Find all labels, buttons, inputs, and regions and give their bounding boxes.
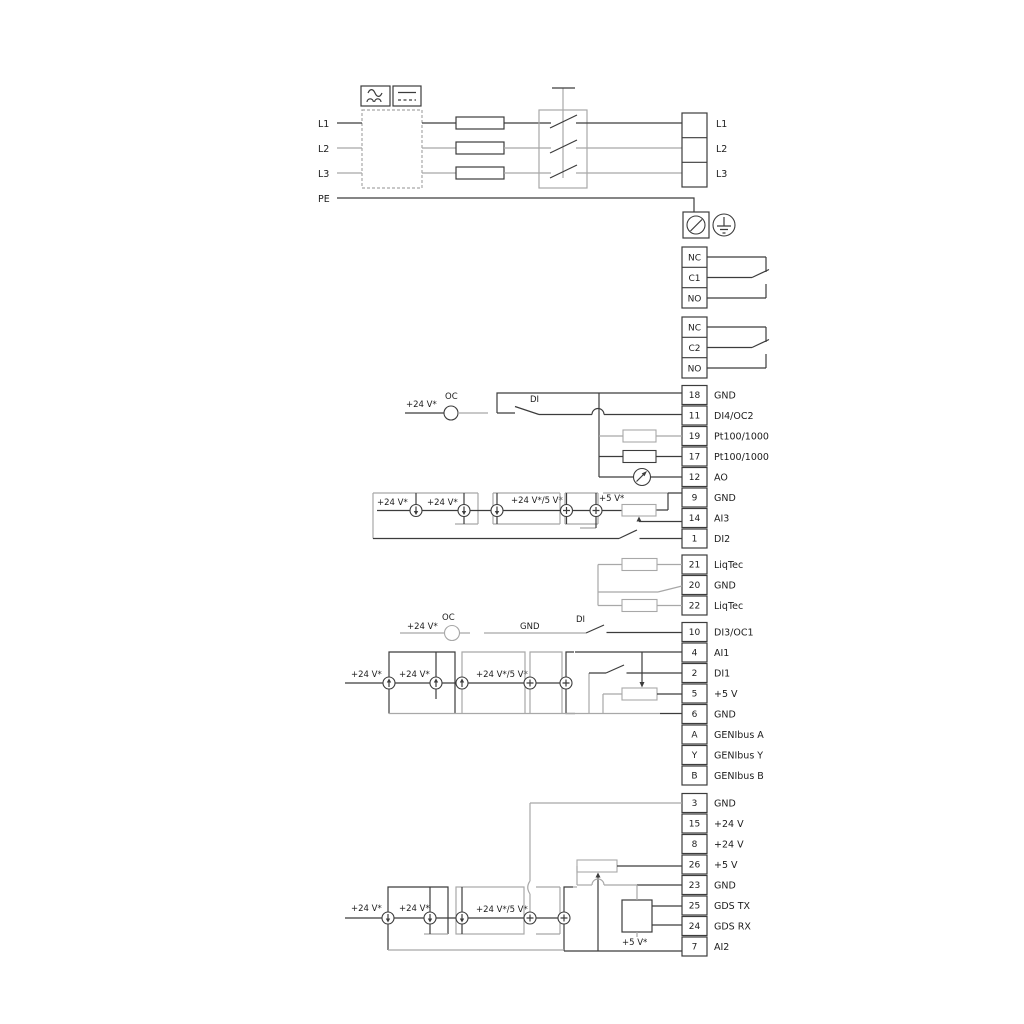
wiring-diagram: L1 L2 L3 PE (0, 0, 1024, 1024)
annotation-plus24v: +24 V* (407, 622, 438, 632)
voltage-source-icon (524, 677, 536, 689)
terminal-12: 12 (689, 473, 700, 483)
terminal-5-label: +5 V (714, 689, 738, 700)
current-source-icon (458, 505, 470, 517)
terminal-3-label: GND (714, 799, 736, 810)
terminal-22: 22 (689, 602, 700, 612)
terminal-strip-c: 3GND 15+24 V 8+24 V 26+5 V 23GND 25GDS T… (682, 794, 751, 957)
analog-output-meter-icon (634, 469, 651, 486)
annotation-oc: OC (445, 392, 458, 402)
power-left-label-l3: L3 (318, 169, 329, 180)
annotation-plus24v5v: +24 V*/5 V* (476, 670, 528, 680)
terminal-strip-a: 18GND 11DI4/OC2 19Pt100/1000 17Pt100/100… (682, 386, 769, 549)
annotation-plus24v: +24 V* (399, 904, 430, 914)
annotation-plus24v: +24 V* (351, 670, 382, 680)
terminal-14-label: AI3 (714, 514, 729, 525)
terminal-strip-b: 10DI3/OC1 4AI1 2DI1 5+5 V 6GND AGENIbus … (682, 623, 764, 786)
power-right-label-l3: L3 (716, 169, 727, 180)
pe-screw-terminal (683, 212, 709, 238)
terminal-1-label: DI2 (714, 534, 730, 545)
emc-filter-box (362, 110, 422, 188)
power-right-label-l2: L2 (716, 144, 727, 155)
current-source-icon (410, 505, 422, 517)
fuse-l1 (456, 117, 504, 129)
annotation-plus24v: +24 V* (399, 670, 430, 680)
fuse-l2 (456, 142, 504, 154)
terminal-7: 7 (692, 943, 698, 953)
terminal-4: 4 (692, 649, 698, 659)
pe-wire (337, 198, 694, 212)
section-di4-wiring: +24 V* OC DI (405, 392, 682, 486)
annotation-plus24v: +24 V* (377, 498, 408, 508)
open-collector-icon (444, 406, 458, 420)
liqtec-sensor-wiring (598, 559, 682, 612)
terminal-20-label: GND (714, 581, 736, 592)
wiper-arrow (596, 873, 601, 952)
liqtec-resistor-22 (622, 600, 657, 612)
switch-contact-di4 (515, 407, 539, 415)
voltage-source-icon (560, 677, 572, 689)
current-source-icon (456, 677, 468, 689)
terminal-23-label: GND (714, 881, 736, 892)
annotation-plus5v: +5 V* (622, 938, 647, 948)
terminal-26-label: +5 V (714, 860, 738, 871)
current-source-icon (382, 912, 394, 924)
annotation-plus24v5v: +24 V*/5 V* (511, 496, 563, 506)
sensor-row-ai3: +24 V* +24 V* +24 V*/5 V* +5 V* (373, 493, 682, 539)
resistor-pt100-17 (623, 451, 656, 463)
terminal-6: 6 (692, 710, 698, 720)
potentiometer-ai3 (622, 505, 682, 522)
terminal-23: 23 (689, 881, 700, 891)
terminal-21: 21 (689, 561, 700, 571)
relay2-contact (707, 327, 769, 368)
annotation-plus24v: +24 V* (427, 498, 458, 508)
relay1-no: NO (688, 295, 702, 305)
relay2-block: NC C2 NO (682, 317, 769, 378)
current-source-icon (456, 912, 468, 924)
terminal-24: 24 (689, 922, 701, 932)
current-source-icon (424, 912, 436, 924)
switch-contact-di1 (606, 665, 624, 673)
relay2-c2: C2 (688, 344, 700, 354)
relay2-no: NO (688, 365, 702, 375)
voltage-source-icon (524, 912, 536, 924)
annotation-plus24v5v: +24 V*/5 V* (476, 905, 528, 915)
terminal-18-label: GND (714, 391, 736, 402)
terminal-bb-label: GENIbus B (714, 771, 764, 782)
terminal-3: 3 (692, 799, 698, 809)
terminal-24-label: GDS RX (714, 922, 751, 933)
annotation-gnd: GND (520, 622, 540, 632)
fuse-l3 (456, 167, 504, 179)
current-source-icon (430, 677, 442, 689)
annotation-oc: OC (442, 613, 455, 623)
terminal-9-label: GND (714, 493, 736, 504)
terminal-6-label: GND (714, 710, 736, 721)
voltage-source-icon (561, 505, 573, 517)
terminal-22-label: LiqTec (714, 601, 743, 612)
power-left-label-l1: L1 (318, 119, 329, 130)
voltage-source-icon (590, 505, 602, 517)
terminal-17: 17 (689, 453, 700, 463)
section-di3-wiring: +24 V* OC GND DI (400, 613, 682, 641)
terminal-a-label: GENIbus A (714, 730, 764, 741)
terminal-25-label: GDS TX (714, 901, 751, 912)
relay1-c1: C1 (688, 274, 700, 284)
annotation-plus24v: +24 V* (351, 904, 382, 914)
terminal-20: 20 (689, 581, 701, 591)
terminal-12-label: AO (714, 473, 728, 484)
relay2-nc: NC (688, 324, 701, 334)
annotation-di: DI (530, 395, 539, 405)
annotation-plus24v: +24 V* (406, 400, 437, 410)
terminal-14: 14 (689, 514, 701, 524)
relay1-contact (707, 257, 769, 298)
diagram-canvas: L1 L2 L3 PE (0, 0, 1024, 1024)
terminal-y-label: GENIbus Y (714, 751, 763, 762)
terminal-19: 19 (689, 432, 701, 442)
earth-icon (713, 214, 735, 236)
terminal-2-label: DI1 (714, 669, 730, 680)
terminal-1: 1 (692, 535, 698, 545)
power-left-label-l2: L2 (318, 144, 329, 155)
terminal-strip-liqtec: 21LiqTec 20GND 22LiqTec (598, 555, 743, 615)
relay1-nc: NC (688, 254, 701, 264)
annotation-di: DI (576, 615, 585, 625)
terminal-19-label: Pt100/1000 (714, 432, 769, 443)
current-source-icon (383, 677, 395, 689)
switch-contact-di2 (619, 530, 637, 539)
terminal-11: 11 (689, 412, 700, 422)
wire-hop (592, 409, 604, 415)
terminal-17-label: Pt100/1000 (714, 452, 769, 463)
sensor-row-ai1: +24 V* +24 V* +24 V*/5 V* (345, 652, 682, 714)
terminal-8-label: +24 V (714, 840, 744, 851)
open-collector-icon (445, 626, 460, 641)
power-left-label-pe: PE (318, 194, 330, 205)
terminal-a: A (691, 731, 698, 741)
terminal-2: 2 (692, 669, 698, 679)
terminal-bb: B (691, 772, 697, 782)
switch-contact-di3 (586, 625, 604, 633)
terminal-26: 26 (689, 861, 701, 871)
annotation-plus5v: +5 V* (599, 494, 624, 504)
terminal-15-label: +24 V (714, 819, 744, 830)
terminal-9: 9 (692, 494, 698, 504)
power-section: L1 L2 L3 PE (318, 86, 735, 238)
terminal-8: 8 (692, 840, 698, 850)
wiper-arrow (640, 652, 645, 688)
terminal-10: 10 (689, 628, 701, 638)
potentiometer-ai2 (577, 860, 617, 872)
terminal-y: Y (691, 751, 698, 761)
terminal-7-label: AI2 (714, 942, 729, 953)
terminal-11-label: DI4/OC2 (714, 411, 754, 422)
terminal-25: 25 (689, 902, 700, 912)
ac-symbol-icon (361, 86, 390, 106)
terminal-5: 5 (692, 690, 698, 700)
voltage-source-icon (558, 912, 570, 924)
terminal-4-label: AI1 (714, 648, 729, 659)
terminal-15: 15 (689, 820, 700, 830)
power-right-label-l1: L1 (716, 119, 727, 130)
dc-symbol-icon (393, 86, 421, 106)
gds-sensor-box (622, 885, 682, 937)
potentiometer-ai1 (622, 688, 657, 700)
liqtec-resistor-21 (622, 559, 657, 571)
power-terminal-block (682, 113, 707, 187)
current-source-icon (491, 505, 503, 517)
terminal-18: 18 (689, 391, 701, 401)
sensor-row-ai2: +24 V* +24 V* +24 V*/5 V* +5 V* (345, 803, 682, 951)
terminal-21-label: LiqTec (714, 560, 743, 571)
terminal-10-label: DI3/OC1 (714, 628, 754, 639)
relay1-block: NC C1 NO (682, 247, 769, 308)
resistor-pt100-19 (623, 430, 656, 442)
